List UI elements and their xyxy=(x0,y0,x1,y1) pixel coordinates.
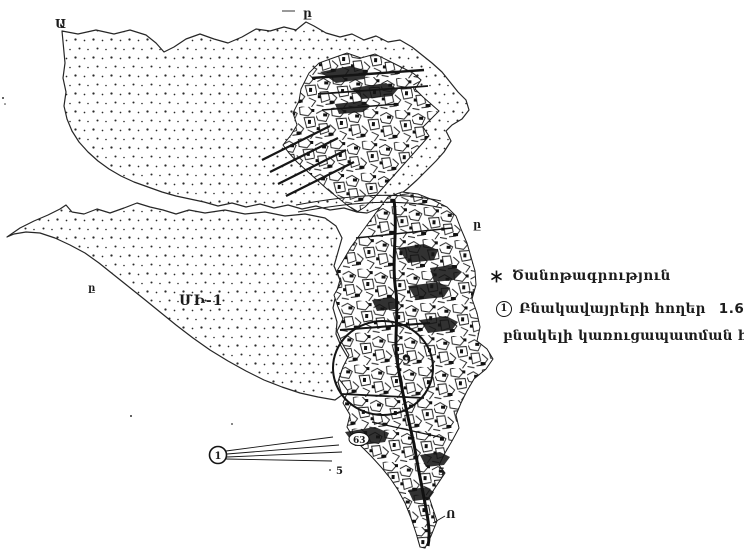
map-label-zone: ՄԻ-1 xyxy=(179,293,223,309)
map-label-ellipse-zone: 19 xyxy=(393,353,411,368)
map-label-top-left: Ա xyxy=(55,17,66,31)
callout-number: 1 xyxy=(215,451,222,462)
map-label-block-63: 63 xyxy=(353,436,366,446)
map-label-top-center: ը xyxy=(303,6,312,20)
map-label-block-7: 7 xyxy=(468,291,475,302)
legend-note-label: Ծանոթագրություն xyxy=(512,268,671,284)
map-label-southwest-edge: ը xyxy=(88,283,96,294)
map-label-tail: Ո xyxy=(446,508,456,521)
map-label-block-5-left: 5 xyxy=(336,466,343,477)
legend-item-row: 1 Բնակավայրերի հողեր 1.6764 հա - xyxy=(496,301,744,317)
legend-item-text: Բնակավայրերի հողեր xyxy=(519,301,706,317)
legend-item-line2: բնակելի կառուցապատման համար xyxy=(503,328,744,344)
map-label-right-edge: ը xyxy=(473,218,481,231)
note-asterisk-icon xyxy=(490,270,503,283)
legend-note-row: Ծանոթագրություն xyxy=(490,268,671,284)
legend-item-value: 1.6764 հա xyxy=(719,301,744,317)
map-label-block-5-right: 5 xyxy=(438,467,445,478)
callout: 1 xyxy=(210,437,343,464)
legend-item-circled-marker: 1 xyxy=(496,301,512,317)
callout-lines xyxy=(226,437,342,461)
scanned-map-page: 1 Ա ը ը ը ՄԻ-1 xyxy=(0,0,744,549)
lower-stippled-region xyxy=(7,203,348,400)
